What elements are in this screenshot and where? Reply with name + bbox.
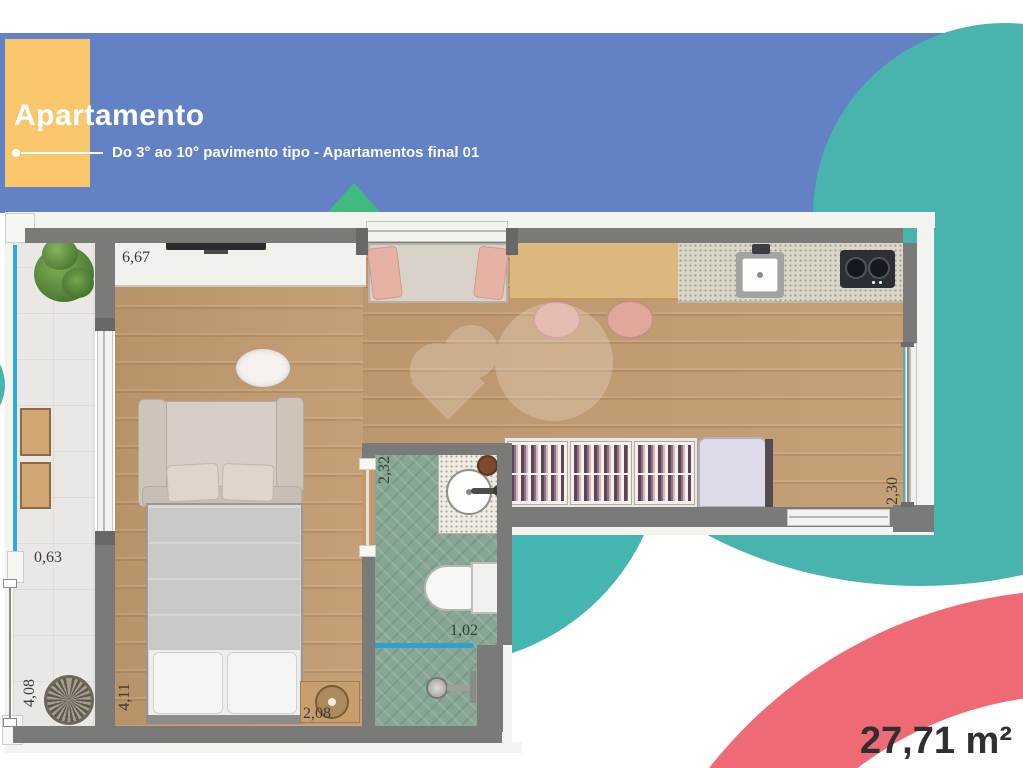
bottom-window-glass — [789, 516, 888, 518]
sofa-pillow-1 — [166, 463, 220, 503]
total-area-label: 27,71 m² — [790, 720, 1012, 763]
dim-kitchen-depth: 2,30 — [884, 463, 900, 519]
right-window-glass — [909, 345, 911, 504]
dim-living-width: 6,67 — [122, 249, 150, 267]
bed-duvet — [149, 506, 300, 652]
wall-balcony-top — [95, 228, 115, 321]
sofa-pillow-2 — [221, 463, 274, 502]
top-window-glass — [368, 230, 506, 232]
dimension-line-balcony — [9, 584, 11, 722]
developer-watermark-logo — [400, 295, 615, 455]
cooktop-burner-2 — [868, 257, 890, 279]
kitchen-faucet — [752, 244, 770, 254]
dim-bathroom-width: 1,02 — [450, 622, 478, 640]
dimension-cap-right-top — [901, 342, 914, 347]
wall-right-top — [903, 243, 917, 343]
dim-balcony-length: 4,08 — [21, 665, 37, 721]
window-post-right — [506, 228, 518, 255]
balcony-door-glass — [103, 323, 105, 532]
wardrobe-rod-1 — [510, 473, 565, 475]
kitchen-sink-drain — [757, 272, 763, 278]
divider-dot — [12, 149, 20, 157]
bench-pillow-right — [473, 245, 509, 300]
refrigerator — [698, 437, 767, 508]
wall-bathroom-right-lower — [477, 645, 503, 732]
outer-wall-right — [917, 212, 934, 534]
watermark-circle — [495, 303, 613, 421]
balcony-door-post-top — [95, 318, 115, 331]
wardrobe-section-3 — [634, 441, 695, 505]
cooktop-burner-1 — [845, 257, 867, 279]
dimension-line-right — [907, 345, 909, 505]
dim-bedroom-length: 4,11 — [116, 669, 132, 725]
window-post-left — [356, 228, 368, 255]
shower-bracket — [470, 671, 476, 703]
cooktop-knob-1 — [872, 281, 875, 284]
outer-wall-bottom-left — [5, 742, 522, 753]
balcony-door-post-bottom — [95, 531, 115, 545]
green-triangle-accent — [327, 183, 381, 213]
vanity-vase — [477, 455, 498, 476]
dim-bathroom-length: 2,32 — [376, 442, 392, 498]
wall-bathroom-left-lower — [362, 557, 375, 732]
wardrobe-rod-3 — [637, 473, 692, 475]
dining-table — [510, 243, 678, 301]
wall-bathroom-right-upper — [497, 443, 512, 645]
shower-glass-line — [374, 643, 474, 648]
bed-pillow-2 — [227, 652, 297, 714]
wall-balcony-bottom — [95, 545, 115, 727]
bed-headboard — [146, 715, 303, 724]
tv-stand — [204, 250, 228, 254]
shower-head — [426, 677, 448, 699]
page-title: Apartamento — [14, 99, 205, 133]
oval-rug — [236, 349, 290, 387]
bathroom-sliding-door — [366, 470, 369, 545]
divider-line — [21, 152, 103, 154]
cooktop-knob-2 — [879, 281, 882, 284]
bench-pillow-left — [367, 245, 403, 300]
dim-balcony-width: 0,63 — [34, 549, 62, 567]
wall-bottom-left — [13, 726, 502, 743]
balcony-glass-rail — [13, 245, 17, 552]
balcony-stool-2 — [20, 462, 51, 509]
dimension-cap-balcony-top — [3, 579, 17, 588]
bed-pillow-1 — [153, 652, 223, 714]
toilet-tank — [471, 562, 499, 614]
floor-plan-poster: Apartamento Do 3° ao 10° pavimento tipo … — [0, 0, 1023, 768]
toilet-bowl — [424, 565, 476, 611]
dimension-cap-balcony-bottom — [3, 718, 17, 727]
dim-bedroom-width: 2,08 — [303, 705, 331, 723]
balcony-sliding-door — [97, 321, 113, 534]
rattan-rug — [44, 675, 94, 725]
sofa-armrest-right — [276, 397, 304, 493]
balcony-stool-1 — [20, 408, 51, 456]
bathroom-door-jamb-bottom — [359, 545, 376, 557]
page-subtitle: Do 3° ao 10° pavimento tipo - Apartament… — [112, 144, 479, 161]
bathroom-door-jamb-top — [359, 458, 376, 470]
wardrobe-rod-2 — [573, 473, 629, 475]
refrigerator-hinge — [765, 439, 773, 508]
plant-leaves-2 — [62, 268, 94, 298]
dimension-cap-right-bottom — [901, 502, 914, 507]
